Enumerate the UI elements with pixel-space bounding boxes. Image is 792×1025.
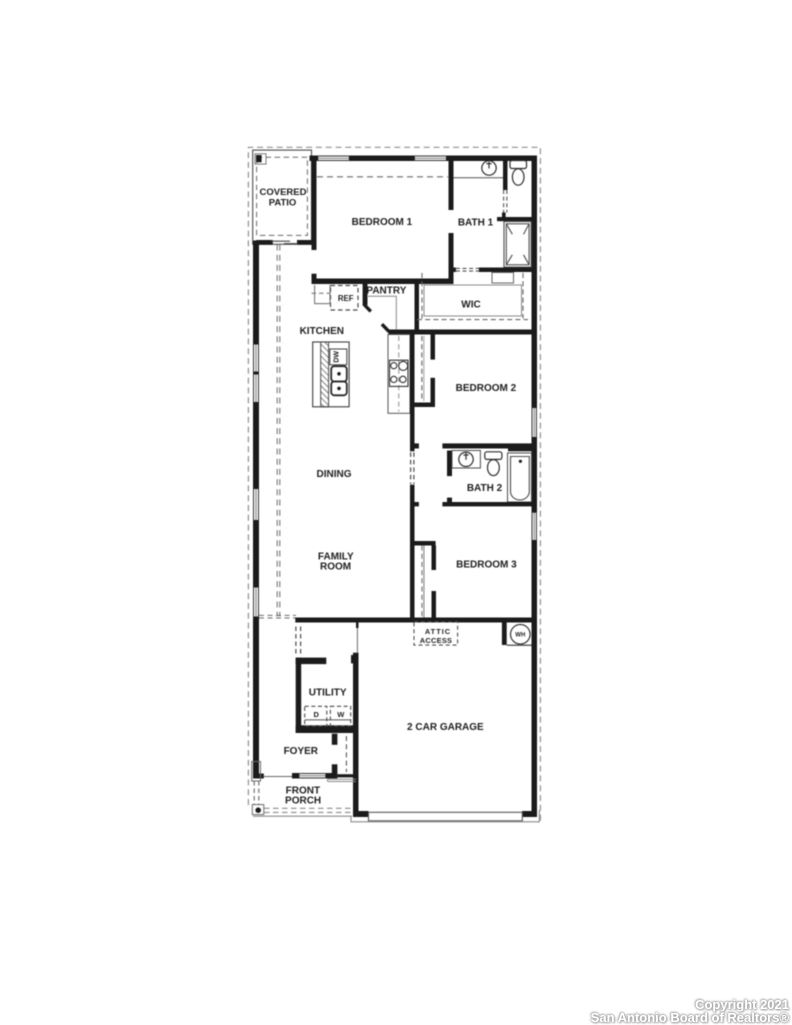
svg-text:COVERED: COVERED [260, 187, 307, 198]
svg-text:WH: WH [515, 633, 525, 639]
svg-text:BATH 2: BATH 2 [467, 483, 503, 494]
svg-text:REF: REF [338, 294, 354, 303]
svg-text:WIC: WIC [461, 299, 480, 310]
svg-text:D: D [313, 710, 319, 719]
svg-text:2 CAR GARAGE: 2 CAR GARAGE [407, 722, 484, 733]
svg-text:ROOM: ROOM [320, 561, 351, 572]
svg-text:PORCH: PORCH [285, 795, 321, 806]
svg-text:PATIO: PATIO [269, 198, 297, 209]
svg-text:PANTRY: PANTRY [366, 286, 406, 297]
svg-text:KITCHEN: KITCHEN [300, 326, 344, 337]
svg-text:ACCESS: ACCESS [420, 636, 453, 645]
svg-text:BATH 1: BATH 1 [458, 218, 494, 229]
svg-text:DW: DW [333, 351, 340, 363]
svg-text:BEDROOM 2: BEDROOM 2 [456, 383, 517, 394]
svg-text:BEDROOM 1: BEDROOM 1 [352, 217, 413, 228]
svg-text:BEDROOM 3: BEDROOM 3 [456, 559, 517, 570]
svg-text:DINING: DINING [317, 469, 352, 480]
svg-text:ATTIC: ATTIC [425, 627, 451, 636]
svg-text:UTILITY: UTILITY [309, 687, 347, 698]
svg-text:FOYER: FOYER [284, 746, 319, 757]
svg-text:W: W [337, 710, 345, 719]
